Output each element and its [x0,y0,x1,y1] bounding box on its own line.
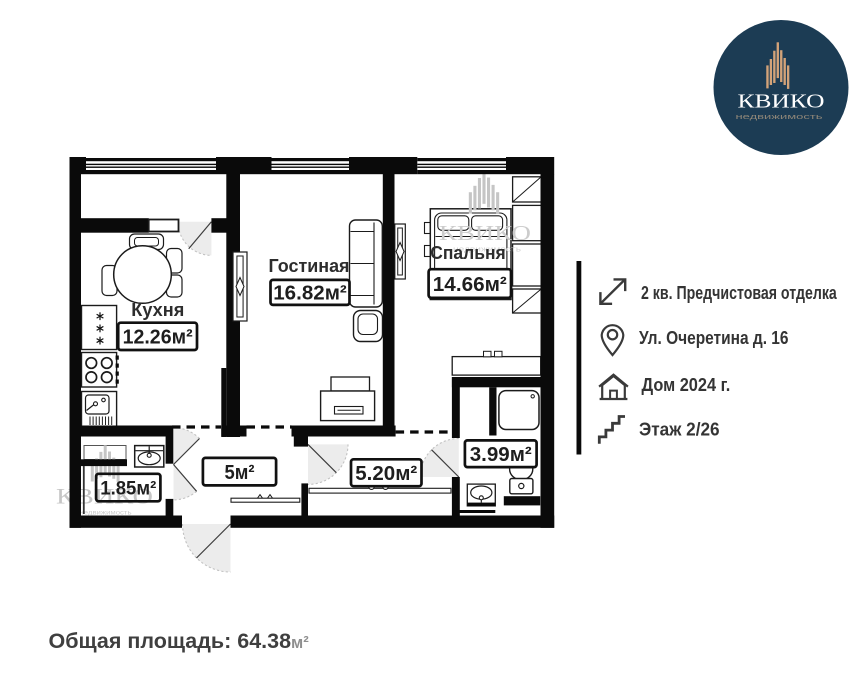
svg-text:Спальня: Спальня [430,242,506,263]
svg-text:12.26м²: 12.26м² [123,326,193,349]
svg-text:1.85м²: 1.85м² [100,477,156,499]
svg-text:Общая площадь: 64.38м²: Общая площадь: 64.38м² [49,629,310,653]
svg-text:3.99м²: 3.99м² [470,443,532,466]
svg-text:Гостиная: Гостиная [269,255,350,276]
svg-text:14.66м²: 14.66м² [433,273,507,296]
svg-text:Кухня: Кухня [131,299,184,320]
svg-text:недвижимость: недвижимость [80,510,133,517]
svg-text:16.82м²: 16.82м² [273,282,347,305]
svg-text:КВИКО: КВИКО [738,91,825,113]
svg-text:Ул. Очеретина д. 16: Ул. Очеретина д. 16 [639,327,789,348]
svg-text:Дом 2024 г.: Дом 2024 г. [642,374,731,395]
svg-text:Этаж 2/26: Этаж 2/26 [639,419,720,440]
svg-text:недвижимость: недвижимость [736,112,823,121]
svg-text:5.20м²: 5.20м² [355,462,417,485]
svg-text:2 кв. Предчистовая отделка: 2 кв. Предчистовая отделка [641,282,837,303]
svg-text:5м²: 5м² [225,461,255,484]
